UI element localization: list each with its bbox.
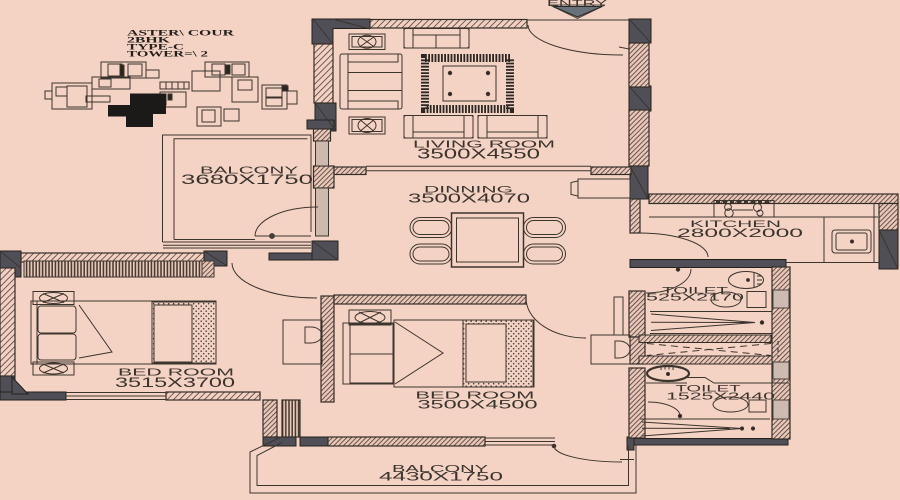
svg-text:4430X1750: 4430X1750	[379, 472, 503, 484]
svg-text:3515X3700: 3515X3700	[115, 375, 235, 390]
svg-text:TOWER=\ 2: TOWER=\ 2	[127, 48, 208, 58]
svg-text:3500X4070: 3500X4070	[408, 191, 530, 205]
svg-text:3500X4550: 3500X4550	[417, 147, 540, 163]
svg-text:2800X2000: 2800X2000	[677, 226, 803, 240]
svg-text:3500X4500: 3500X4500	[418, 397, 539, 411]
svg-text:525X2170: 525X2170	[646, 293, 745, 304]
svg-text:1525X2440: 1525X2440	[666, 392, 776, 403]
svg-text:3680X1750: 3680X1750	[181, 172, 313, 187]
